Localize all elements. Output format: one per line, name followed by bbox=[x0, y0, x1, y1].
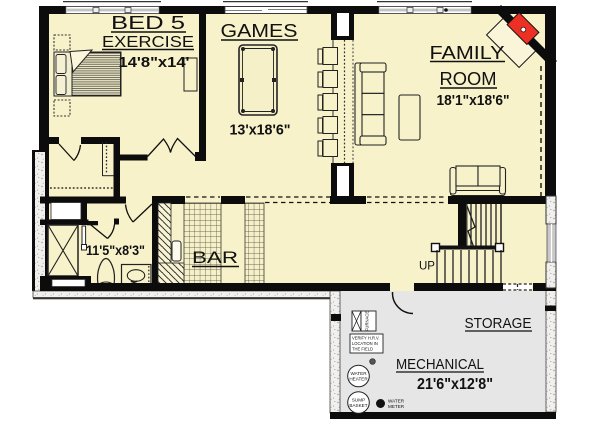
svg-text:FAMILY: FAMILY bbox=[430, 43, 505, 63]
svg-text:HEATER: HEATER bbox=[349, 377, 368, 382]
svg-text:BAR: BAR bbox=[192, 248, 238, 267]
svg-text:13'x18'6": 13'x18'6" bbox=[230, 122, 291, 139]
svg-text:THE FIELD: THE FIELD bbox=[352, 347, 373, 352]
svg-text:BASKET: BASKET bbox=[349, 403, 367, 408]
svg-text:VERIFY H.R.V.: VERIFY H.R.V. bbox=[352, 336, 380, 341]
svg-text:21'6"x12'8": 21'6"x12'8" bbox=[417, 376, 493, 393]
svg-text:METER: METER bbox=[388, 404, 405, 409]
svg-text:STORAGE: STORAGE bbox=[465, 315, 532, 332]
svg-text:FURNACE: FURNACE bbox=[365, 311, 370, 331]
svg-text:LOCATION IN: LOCATION IN bbox=[352, 341, 378, 346]
svg-text:GAMES: GAMES bbox=[221, 21, 298, 41]
svg-text:MECHANICAL: MECHANICAL bbox=[396, 356, 484, 373]
svg-text:SUMP: SUMP bbox=[352, 398, 365, 403]
svg-text:18'1"x18'6": 18'1"x18'6" bbox=[437, 92, 510, 109]
svg-text:WATER: WATER bbox=[388, 399, 405, 404]
svg-text:11'5"x8'3": 11'5"x8'3" bbox=[86, 242, 145, 258]
svg-text:EXERCISE: EXERCISE bbox=[102, 34, 194, 51]
svg-text:WATER: WATER bbox=[350, 371, 367, 376]
svg-text:ROOM: ROOM bbox=[440, 69, 497, 89]
svg-text:14'8"x14': 14'8"x14' bbox=[119, 54, 190, 71]
svg-text:BED 5: BED 5 bbox=[111, 13, 185, 33]
svg-text:UP: UP bbox=[419, 261, 435, 273]
